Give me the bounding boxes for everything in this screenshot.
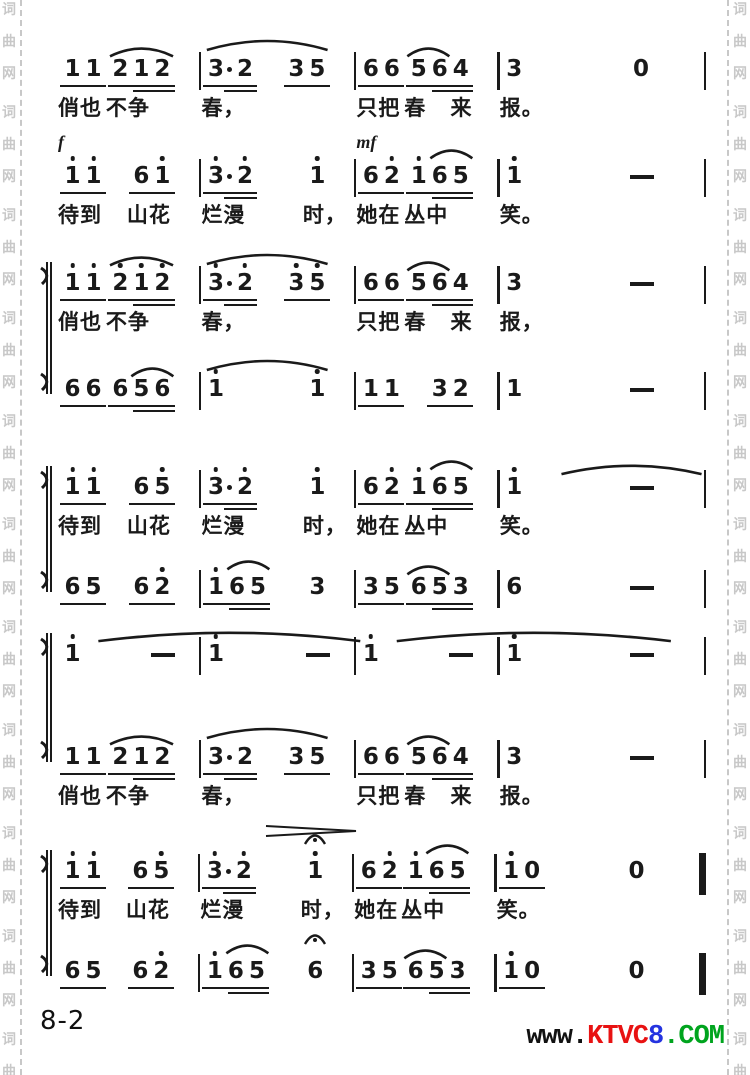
note-digit: 6	[133, 576, 149, 599]
note-digit: 5	[86, 960, 102, 983]
note-beam-group: 3	[502, 58, 527, 87]
octave-dot	[91, 467, 96, 472]
note-group: 62她在	[358, 476, 404, 505]
slur-arc	[226, 559, 271, 571]
note-digit: 1	[309, 476, 325, 499]
slur-arc	[108, 46, 175, 58]
octave-dot	[243, 156, 248, 161]
watermark-divider-left	[20, 0, 22, 1075]
note-digit: 6	[506, 576, 522, 599]
note-digit: 2	[154, 576, 170, 599]
note-group: 32春，	[203, 746, 257, 775]
note-beam-group: 165	[203, 576, 270, 605]
slur-arc	[406, 260, 451, 272]
note-beam-group: 3	[502, 746, 527, 775]
watermark-text: 网	[733, 376, 747, 390]
note-beam-group: 3	[305, 576, 330, 605]
note-beam-group: 1	[305, 165, 330, 194]
note-beam-group: 1	[203, 378, 228, 407]
note-digit: 1	[506, 378, 522, 401]
note-digit: 1	[363, 378, 379, 401]
note-beam-group: 1	[305, 476, 330, 505]
octave-dot	[213, 951, 218, 956]
note-beam-group: 35	[284, 58, 330, 87]
note-group: 564春 来	[406, 272, 473, 301]
watermark-text: 曲	[2, 35, 16, 49]
note-group: 66只把	[358, 272, 404, 301]
note-beam-group: 66	[358, 746, 404, 775]
measure: 11俏也212不争	[58, 746, 199, 775]
note-digit: 1	[133, 58, 149, 81]
note-digit: 3	[208, 165, 224, 188]
note-beam-group: 6	[502, 576, 527, 605]
note-digit: 6	[361, 860, 377, 883]
watermark-text: 网	[2, 170, 16, 184]
note-beam-group: 66	[358, 272, 404, 301]
measure: 66只把564春 来	[356, 746, 497, 775]
watermark-text: 词	[2, 209, 16, 223]
note-beam-group: 564	[406, 58, 473, 87]
watermark-text: 网	[2, 479, 16, 493]
octave-dot	[413, 851, 418, 856]
note-group: 66只把	[358, 58, 404, 87]
watermark-text: 曲	[2, 550, 16, 564]
lyric-text: 春 来	[404, 92, 472, 122]
end-barline	[704, 740, 707, 778]
lyric-text: 笑。	[500, 510, 544, 540]
note-digit: 5	[384, 576, 400, 599]
lyric-text: 山花	[126, 894, 170, 924]
note-group: 1	[358, 643, 383, 672]
watermark-text: 曲	[2, 962, 16, 976]
note-digit: 5	[411, 746, 427, 769]
watermark-text: 词	[733, 3, 747, 17]
measure-slur-arc	[203, 358, 331, 372]
lyric-text: 丛中	[404, 199, 448, 229]
watermark-text: 网	[2, 685, 16, 699]
note-digit: 2	[237, 58, 253, 81]
lyric-text: 待到	[58, 510, 102, 540]
note-group: 3报。	[502, 58, 527, 87]
end-barline	[704, 372, 707, 410]
note-digit: 1	[208, 643, 224, 666]
site-watermark: www.KTVC8.COM	[526, 1022, 724, 1052]
half-note-dash	[630, 388, 654, 392]
end-barline	[704, 266, 707, 304]
note-digit: 1	[506, 476, 522, 499]
note-digit: 1	[133, 272, 149, 295]
note-digit: 1	[86, 58, 102, 81]
tie-arc	[388, 630, 680, 643]
lyric-text: 丛中	[401, 894, 445, 924]
site-watermark-prefix: www.	[526, 1022, 587, 1052]
note-beam-group: 564	[406, 746, 473, 775]
note-beam-group: 6	[303, 960, 328, 989]
watermark-text: 词	[733, 106, 747, 120]
note-group: 653	[403, 960, 470, 989]
note-beam-group: 0	[628, 58, 653, 87]
note-beam-group: 11	[60, 272, 106, 301]
note-beam-group: 65	[60, 576, 106, 605]
slur-arc	[108, 734, 175, 746]
music-row: 11俏也212不争32春，3566只把564春 来3报。	[58, 746, 706, 786]
note-group: 1笑。	[502, 476, 527, 505]
octave-dot	[369, 634, 374, 639]
note-group: 564春 来	[406, 58, 473, 87]
note-digit: 5	[249, 960, 265, 983]
note-digit: 5	[450, 860, 466, 883]
note-digit: 2	[112, 58, 128, 81]
music-row: 666561111321	[58, 378, 706, 418]
watermark-text: 词	[2, 827, 16, 841]
note-group: 62她在mf	[358, 165, 404, 194]
note-beam-group: 62	[358, 476, 404, 505]
watermark-text: 曲	[733, 35, 747, 49]
octave-dot	[70, 156, 75, 161]
note-digit: 6	[384, 58, 400, 81]
note-group: 653	[406, 576, 473, 605]
system-bracket	[46, 633, 52, 762]
octave-dot	[214, 369, 219, 374]
note-beam-group: 62	[128, 960, 174, 989]
watermark-text: 曲	[2, 1065, 16, 1075]
note-beam-group: 66	[60, 378, 106, 407]
half-note-dash	[630, 653, 654, 657]
watermark-text: 词	[733, 1033, 747, 1047]
note-digit: 5	[250, 576, 266, 599]
note-group: 1	[203, 378, 228, 407]
octave-dot	[390, 156, 395, 161]
note-group: 35	[284, 746, 330, 775]
note-digit: 6	[363, 476, 379, 499]
watermark-text: 网	[2, 891, 16, 905]
note-digit: 6	[229, 576, 245, 599]
tie-arc	[90, 630, 369, 643]
note-beam-group: 1	[203, 643, 228, 672]
watermark-text: 曲	[2, 756, 16, 770]
note-group: 65山花	[128, 860, 174, 889]
score-page: 词曲网词曲网词曲网词曲网词曲网词曲网词曲网词曲网词曲网词曲网词曲网 词曲网词曲网…	[0, 0, 750, 1075]
measure-slur-arc	[203, 726, 331, 740]
note-digit: 2	[237, 746, 253, 769]
note-digit: 0	[628, 960, 644, 983]
measure: 1132	[356, 378, 497, 407]
music-row: 65621653356536	[58, 576, 706, 616]
note-digit: 2	[153, 960, 169, 983]
note-beam-group: 0	[624, 860, 649, 889]
note-digit: 3	[432, 378, 448, 401]
note-digit: 2	[112, 272, 128, 295]
music-row: 11俏也212不争32春，3566只把564春 来3报，	[58, 272, 706, 312]
watermark-text: 网	[733, 891, 747, 905]
watermark-text: 网	[2, 67, 16, 81]
note-group: 1时，	[305, 476, 330, 505]
note-beam-group: 165	[202, 960, 269, 989]
measure: 1	[356, 643, 497, 672]
note-group: 66只把	[358, 746, 404, 775]
note-beam-group: 10	[499, 860, 545, 889]
note-digit: 2	[384, 476, 400, 499]
note-digit: 2	[384, 165, 400, 188]
octave-dot	[70, 467, 75, 472]
note-beam-group: 564	[406, 272, 473, 301]
note-group: 1	[305, 378, 330, 407]
watermark-text: 网	[2, 273, 16, 287]
note-digit: 4	[453, 746, 469, 769]
watermark-text: 曲	[733, 962, 747, 976]
note-digit: 3	[450, 960, 466, 983]
octave-dot	[243, 263, 248, 268]
lyric-text: 春 来	[404, 780, 472, 810]
measure: 32春，35	[201, 58, 353, 87]
note-digit: 2	[154, 58, 170, 81]
measure: 1656	[200, 960, 351, 989]
watermark-text: 曲	[2, 859, 16, 873]
end-barline	[704, 52, 707, 90]
note-group: 165丛中	[403, 860, 470, 889]
end-barline	[704, 570, 707, 608]
measure: 100	[497, 960, 699, 989]
watermark-text: 曲	[733, 550, 747, 564]
note-digit: 3	[309, 576, 325, 599]
measure: 6	[500, 576, 704, 605]
music-row: 11待到65山花32烂漫1时，62她在165丛中10笑。0	[58, 860, 706, 900]
watermark-divider-right	[727, 0, 729, 1075]
lyric-text: 时，	[303, 510, 347, 540]
watermark-text: 网	[2, 994, 16, 1008]
slur-arc	[425, 843, 470, 855]
note-digit: 1	[86, 860, 102, 883]
octave-dot	[294, 263, 299, 268]
note-digit: 3	[208, 272, 224, 295]
note-beam-group: 10	[499, 960, 545, 989]
duration-dot	[227, 485, 232, 490]
note-beam-group: 65	[60, 960, 106, 989]
note-beam-group: 212	[108, 58, 175, 87]
octave-dot	[91, 851, 96, 856]
note-digit: 1	[65, 272, 81, 295]
note-beam-group: 653	[406, 576, 473, 605]
note-digit: 1	[86, 272, 102, 295]
note-digit: 5	[411, 272, 427, 295]
note-digit: 2	[382, 860, 398, 883]
lyric-text: 烂漫	[200, 894, 244, 924]
note-digit: 2	[112, 746, 128, 769]
lyric-text: 烂漫	[201, 510, 245, 540]
note-digit: 3	[208, 746, 224, 769]
measure: 32烂漫1时，	[200, 860, 351, 889]
watermark-text: 曲	[733, 653, 747, 667]
note-beam-group: 32	[427, 378, 473, 407]
note-digit: 1	[65, 165, 81, 188]
slur-arc	[406, 564, 451, 576]
watermark-text: 曲	[2, 241, 16, 255]
note-digit: 1	[154, 165, 170, 188]
octave-dot	[387, 851, 392, 856]
octave-dot	[390, 467, 395, 472]
lyric-text: 时，	[301, 894, 345, 924]
note-digit: 3	[506, 58, 522, 81]
note-group: 1	[502, 378, 527, 407]
measure: 3报。	[500, 746, 704, 775]
octave-dot	[315, 156, 320, 161]
note-beam-group: 32	[203, 476, 257, 505]
note-digit: 5	[153, 860, 169, 883]
note-digit: 1	[86, 746, 102, 769]
lyric-text: 不争	[106, 92, 150, 122]
lyric-text: 报，	[500, 306, 544, 336]
note-digit: 3	[363, 576, 379, 599]
lyric-text: 俏也	[58, 92, 102, 122]
lyric-text: 报。	[500, 92, 544, 122]
note-group: 1时，	[303, 860, 328, 889]
measure: 62她在165丛中	[356, 476, 497, 505]
system-bracket	[46, 466, 52, 592]
note-group: 65	[60, 576, 106, 605]
note-beam-group: 1	[358, 643, 383, 672]
note-digit: 2	[154, 746, 170, 769]
note-beam-group: 65	[129, 476, 175, 505]
note-digit: 3	[208, 476, 224, 499]
note-digit: 6	[432, 58, 448, 81]
note-group: 656	[108, 378, 175, 407]
page-number: 8-2	[40, 1006, 85, 1036]
note-group: 35	[284, 58, 330, 87]
note-group: 0	[628, 58, 653, 87]
lyric-text: 春，	[201, 780, 245, 810]
slur-arc	[225, 943, 270, 955]
note-digit: 5	[309, 746, 325, 769]
note-digit: 6	[65, 378, 81, 401]
note-digit: 3	[506, 746, 522, 769]
note-digit: 6	[132, 860, 148, 883]
note-digit: 0	[633, 58, 649, 81]
note-group: 6	[502, 576, 527, 605]
measure: 1	[500, 378, 704, 407]
note-beam-group: 653	[403, 960, 470, 989]
measure: 35653	[356, 576, 497, 605]
duration-dot	[227, 755, 232, 760]
half-note-dash	[630, 756, 654, 760]
note-beam-group: 32	[203, 58, 257, 87]
octave-dot	[417, 467, 422, 472]
note-group: 32烂漫	[203, 165, 257, 194]
lyric-text: 丛中	[404, 510, 448, 540]
note-digit: 5	[453, 165, 469, 188]
note-digit: 1	[208, 378, 224, 401]
note-group: 61山花	[129, 165, 175, 194]
note-digit: 1	[65, 746, 81, 769]
watermark-text: 网	[733, 685, 747, 699]
note-digit: 5	[429, 960, 445, 983]
measure: 32春，35	[201, 272, 353, 301]
measure: 11待到65山花	[58, 476, 199, 505]
note-digit: 3	[361, 960, 377, 983]
final-barline	[699, 953, 706, 995]
note-beam-group: 11	[358, 378, 404, 407]
slur-arc	[108, 255, 175, 267]
measure: 11	[201, 378, 353, 407]
note-digit: 0	[524, 860, 540, 883]
octave-dot	[70, 634, 75, 639]
note-group: 11	[358, 378, 404, 407]
note-digit: 1	[309, 378, 325, 401]
note-digit: 3	[288, 272, 304, 295]
note-group: 32	[427, 378, 473, 407]
note-group: 1	[502, 643, 527, 672]
note-digit: 6	[154, 378, 170, 401]
lyric-text: 不争	[106, 306, 150, 336]
note-digit: 5	[133, 378, 149, 401]
note-beam-group: 11	[60, 476, 106, 505]
measure-slur-arc	[203, 38, 331, 52]
watermark-text: 词	[733, 930, 747, 944]
note-group: 32春，	[203, 58, 257, 87]
note-group: 564春 来	[406, 746, 473, 775]
note-beam-group: 32	[203, 165, 257, 194]
note-digit: 1	[133, 746, 149, 769]
octave-dot	[160, 156, 165, 161]
note-digit: 1	[86, 476, 102, 499]
note-digit: 1	[307, 860, 323, 883]
note-beam-group: 35	[284, 272, 330, 301]
system-bracket	[46, 850, 52, 976]
measure: 1笑。	[500, 476, 704, 505]
site-watermark-suffix: .COM	[663, 1022, 724, 1052]
lyric-text: 山花	[127, 199, 171, 229]
note-beam-group: 212	[108, 272, 175, 301]
note-group: 11待到	[60, 860, 106, 889]
note-digit: 1	[503, 860, 519, 883]
octave-dot	[315, 369, 320, 374]
measure: 62她在mf165丛中	[356, 165, 497, 194]
note-digit: 3	[288, 746, 304, 769]
octave-dot	[315, 263, 320, 268]
note-group: 1	[60, 643, 85, 672]
watermark-text: 词	[733, 621, 747, 635]
watermark-text: 曲	[733, 859, 747, 873]
note-beam-group: 656	[108, 378, 175, 407]
note-digit: 6	[65, 576, 81, 599]
note-digit: 3	[207, 860, 223, 883]
octave-dot	[70, 263, 75, 268]
watermark-text: 曲	[733, 756, 747, 770]
octave-dot	[509, 951, 514, 956]
note-digit: 0	[524, 960, 540, 983]
music-row: 1111	[58, 643, 706, 683]
note-digit: 6	[384, 746, 400, 769]
note-digit: 6	[112, 378, 128, 401]
octave-dot	[91, 156, 96, 161]
watermark-text: 网	[733, 994, 747, 1008]
watermark-text: 词	[733, 415, 747, 429]
note-digit: 6	[411, 576, 427, 599]
lyric-text: 只把	[356, 306, 400, 336]
note-digit: 0	[628, 860, 644, 883]
measure: 66只把564春 来	[356, 58, 497, 87]
note-digit: 6	[432, 272, 448, 295]
note-digit: 6	[363, 165, 379, 188]
note-digit: 6	[363, 746, 379, 769]
duration-dot	[227, 281, 232, 286]
octave-dot	[315, 467, 320, 472]
note-digit: 6	[432, 746, 448, 769]
note-digit: 6	[132, 960, 148, 983]
octave-dot	[214, 156, 219, 161]
note-group: 212不争	[108, 746, 175, 775]
half-note-dash	[630, 282, 654, 286]
note-group: 3报，	[502, 272, 527, 301]
